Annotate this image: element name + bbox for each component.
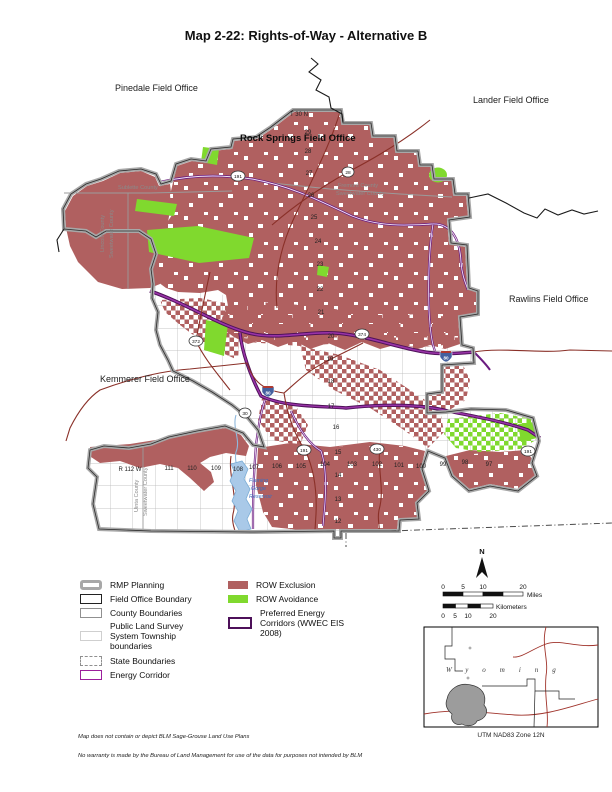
range-label: R 112 W (119, 467, 142, 473)
state-boundaries-swatch (80, 656, 102, 666)
label-pinedale-field-office: Pinedale Field Office (115, 83, 198, 93)
township-label: 20 (328, 334, 335, 340)
township-label: 21 (318, 310, 325, 316)
miles-tick: 0 (441, 584, 445, 591)
township-label: 19 (327, 357, 334, 363)
township-label: 23 (317, 262, 324, 268)
township-label: 18 (328, 379, 335, 385)
inset-map: Wyoming UTM NAD83 Zone 12N (424, 627, 598, 739)
range-label: 109 (211, 466, 222, 472)
label-kemmerer-field-office: Kemmerer Field Office (100, 374, 190, 384)
route-shield: 191 (231, 171, 245, 181)
route-shield-label: 30 (242, 411, 248, 417)
range-label: 107 (249, 465, 260, 471)
miles-tick: 20 (519, 584, 527, 591)
label-rock-springs-field-office: Rock Springs Field Office (240, 133, 356, 144)
label-uinta-county: Uinta County (134, 479, 140, 512)
legend-item-plss-townships: Public Land Survey System Township bound… (80, 621, 183, 651)
footnote-sage-grouse: Map does not contain or depict BLM Sage-… (78, 734, 249, 740)
range-label: 111 (164, 466, 174, 472)
legend-label: RMP Planning (110, 580, 164, 590)
legend-label: ROW Exclusion (256, 580, 316, 590)
route-shield: 430 (370, 444, 384, 454)
township-label: 12 (335, 519, 342, 525)
km-tick: 5 (453, 613, 457, 620)
reservoir-label-line3: Reservoir (249, 494, 272, 500)
township-label: 28 (305, 149, 312, 155)
row-exclusion-swatch (228, 581, 248, 589)
inset-caption: UTM NAD83 Zone 12N (477, 732, 544, 739)
township-label: 13 (335, 497, 342, 503)
range-label: 104 (320, 462, 331, 468)
kilometers-unit: Kilometers (496, 604, 527, 611)
legend-label: Public Land Survey System Township bound… (110, 621, 183, 651)
range-label: 100 (416, 464, 427, 470)
legend-item-state-boundaries: State Boundaries (80, 656, 175, 666)
route-shield-label: 28 (345, 170, 351, 176)
interstate-shield-label: 80 (265, 391, 271, 396)
range-label: 98 (462, 460, 469, 466)
route-shield: 191 (521, 446, 535, 456)
north-arrow-label: N (479, 547, 484, 556)
route-shield-label: 374 (358, 332, 366, 338)
miles-unit: Miles (527, 592, 543, 599)
row-avoidance-swatch (228, 595, 248, 603)
route-shield-label: 372 (192, 339, 200, 345)
route-shield-label: 191 (300, 448, 308, 454)
range-label: 105 (296, 464, 307, 470)
route-shield: 372 (189, 336, 203, 346)
footnote-warranty: No warranty is made by the Bureau of Lan… (78, 753, 362, 759)
legend-item-energy-corridor: Energy Corridor (80, 670, 170, 680)
north-arrow: N (476, 547, 488, 578)
township-label: T 30 N (290, 112, 308, 118)
inset-planning-area (446, 684, 487, 725)
interstate-shield-label: 80 (443, 356, 449, 361)
reservoir-label-line2: Gorge (251, 486, 266, 492)
field-office-boundary-swatch (80, 594, 102, 604)
rmp-planning-swatch (80, 580, 102, 590)
reservoir-label-line1: Flaming (249, 478, 268, 484)
label-lander-field-office: Lander Field Office (473, 95, 549, 105)
legend-item-row-exclusion: ROW Exclusion (228, 580, 316, 590)
legend-item-field-office-boundary: Field Office Boundary (80, 594, 192, 604)
route-shield: 191 (297, 445, 311, 455)
township-label: 24 (315, 239, 322, 245)
label-sweetwater-county-south: Sweetwater County (143, 467, 149, 516)
legend-label: State Boundaries (110, 656, 175, 666)
route-shield-label: 430 (373, 447, 381, 453)
label-sublette-county: Sublette County (118, 185, 158, 191)
range-label: 101 (394, 463, 405, 469)
label-lincoln-county: Lincoln County (100, 215, 106, 252)
township-label: 14 (335, 473, 342, 479)
preferred-corridors-swatch (228, 617, 252, 629)
kilometers-bar (443, 604, 493, 608)
route-shield: 30 (239, 408, 251, 418)
legend-label: County Boundaries (110, 608, 182, 618)
county-boundaries-swatch (80, 608, 102, 618)
label-fremont-county: Fremont County (338, 183, 378, 189)
legend-item-preferred-corridors: Preferred Energy Corridors (WWEC EIS 200… (228, 608, 344, 638)
route-shield-label: 191 (524, 449, 532, 455)
range-label: 103 (347, 462, 358, 468)
range-label: 110 (187, 466, 197, 472)
legend-item-county-boundaries: County Boundaries (80, 608, 182, 618)
route-shield-label: 191 (234, 174, 242, 180)
km-tick: 10 (464, 613, 472, 620)
township-label: 29 (305, 130, 312, 136)
range-label: 97 (486, 462, 493, 468)
legend-item-rmp-planning: RMP Planning (80, 580, 164, 590)
boundary-west-stub (57, 229, 64, 252)
range-label: 108 (233, 467, 244, 473)
corridor-stub (474, 352, 490, 370)
miles-tick: 10 (479, 584, 487, 591)
legend-label: Energy Corridor (110, 670, 170, 680)
north-arrow-icon (476, 557, 488, 578)
km-tick: 20 (489, 613, 497, 620)
scale-bars: 0 5 10 20 Miles Kilometers 0 5 10 20 (441, 584, 543, 620)
inset-state-label: Wyoming (446, 666, 570, 674)
legend-label: ROW Avoidance (256, 594, 318, 604)
township-label: 15 (335, 450, 342, 456)
township-label: 27 (306, 171, 313, 177)
miles-tick: 5 (461, 584, 465, 591)
township-label: 25 (311, 215, 318, 221)
township-label: 26 (308, 193, 315, 199)
road (473, 350, 612, 352)
plss-township-swatch (80, 631, 102, 641)
range-label: 106 (272, 464, 283, 470)
label-rawlins-field-office: Rawlins Field Office (509, 294, 588, 304)
energy-corridor-swatch (80, 670, 102, 680)
legend-item-row-avoidance: ROW Avoidance (228, 594, 318, 604)
township-label: 16 (333, 425, 340, 431)
route-shield: 28 (342, 167, 354, 177)
township-label: 17 (328, 404, 335, 410)
miles-bar (443, 592, 523, 596)
legend-label: Field Office Boundary (110, 594, 192, 604)
km-tick: 0 (441, 613, 445, 620)
map-document-page: { "title": "Map 2-22: Rights-of-Way - Al… (0, 0, 612, 792)
legend-label: Preferred Energy Corridors (WWEC EIS 200… (260, 608, 344, 638)
range-label: 102 (372, 462, 383, 468)
label-sweetwater-county-north: Sweetwater County (336, 191, 385, 197)
route-shield: 374 (355, 329, 369, 339)
township-label: 22 (317, 287, 324, 293)
boundary-east-branch (469, 194, 598, 218)
label-sweetwater-county-west: Sweetwater County (109, 209, 115, 258)
range-label: 99 (440, 462, 447, 468)
